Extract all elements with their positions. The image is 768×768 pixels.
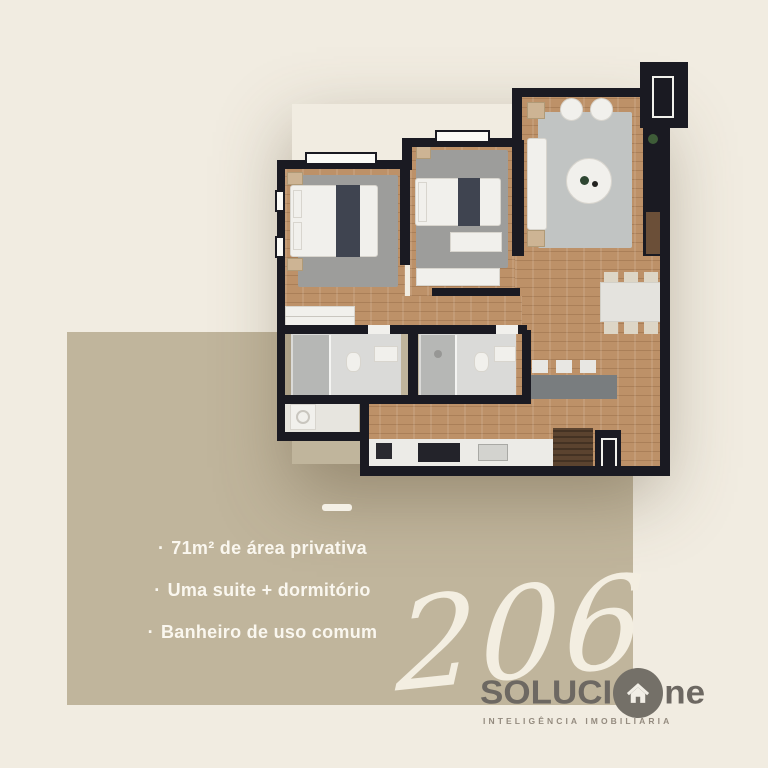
wall	[660, 90, 670, 476]
wall	[518, 88, 648, 97]
entry-door-leaf	[601, 438, 617, 468]
dresser-line	[285, 316, 355, 317]
sink	[478, 444, 508, 461]
wall	[360, 400, 369, 470]
divider-dash	[322, 504, 352, 511]
feature-label: Uma suite + dormitório	[168, 580, 371, 600]
suite-bed	[290, 185, 378, 257]
wall	[360, 466, 665, 476]
pouf	[560, 98, 583, 121]
shower-head-icon	[308, 350, 316, 358]
decor-dot	[592, 181, 598, 187]
washer-door-icon	[296, 410, 310, 424]
bedroom-pillow	[418, 182, 427, 222]
window	[305, 152, 377, 165]
bar-stool	[556, 360, 572, 373]
toilet	[474, 352, 489, 372]
marketing-flyer: ·71m² de área privativa ·Uma suite + dor…	[0, 0, 768, 768]
closet-inner	[652, 76, 674, 118]
appliance-icon	[376, 443, 392, 459]
vanity-sink	[494, 346, 516, 362]
feature-label: 71m² de área privativa	[171, 538, 367, 558]
window	[435, 130, 490, 143]
suite-pillow	[293, 190, 302, 218]
suite-bed-throw	[336, 185, 360, 257]
cooktop	[418, 443, 460, 462]
entry-doormat	[553, 428, 593, 468]
sofa	[527, 138, 547, 230]
bullet-icon: ·	[158, 538, 164, 558]
wall	[408, 330, 418, 402]
feature-label: Banheiro de uso comum	[161, 622, 377, 642]
bathroom1-shower	[293, 335, 331, 395]
suite-nightstand	[287, 258, 303, 271]
bar-stool	[532, 360, 548, 373]
coffee-table	[566, 158, 612, 204]
plant-icon	[580, 176, 589, 185]
wall	[277, 432, 367, 441]
plant-icon	[648, 134, 658, 144]
dining-chair	[644, 322, 658, 334]
floor-plan	[250, 50, 690, 495]
door-opening	[368, 325, 390, 334]
brand-logo: SOLUCI ne	[480, 668, 705, 718]
window	[275, 236, 285, 258]
suite-nightstand	[287, 172, 303, 185]
pouf	[590, 98, 613, 121]
wall	[522, 330, 531, 404]
wall	[400, 165, 410, 265]
bar-stool	[580, 360, 596, 373]
bedroom-dresser	[416, 268, 500, 286]
vanity-sink	[374, 346, 398, 362]
bathroom2-shower	[421, 335, 457, 395]
dining-table	[600, 282, 664, 322]
wall	[512, 140, 524, 256]
side-table	[527, 230, 545, 247]
house-icon	[624, 679, 652, 707]
logo-text-prefix: SOLUCI	[480, 674, 612, 712]
kitchen-island	[527, 375, 617, 399]
bedroom-nightstand	[416, 146, 431, 159]
wall	[285, 395, 531, 404]
bedroom-bed-throw	[458, 178, 480, 226]
logo-circle	[613, 668, 663, 718]
suite-pillow	[293, 222, 302, 250]
wall	[432, 288, 520, 296]
side-table	[527, 102, 545, 119]
wall	[285, 325, 527, 334]
bullet-icon: ·	[148, 622, 154, 642]
window	[275, 190, 285, 212]
bullet-icon: ·	[154, 580, 160, 600]
dining-chair	[604, 322, 618, 334]
toilet	[346, 352, 361, 372]
bedroom-bench	[450, 232, 502, 252]
dining-chair	[624, 322, 638, 334]
shower-head-icon	[434, 350, 442, 358]
logo-text-suffix: ne	[664, 674, 705, 712]
feature-line: ·71m² de área privativa	[60, 537, 465, 559]
kitchen-counter	[368, 439, 553, 468]
door-opening	[496, 325, 518, 334]
